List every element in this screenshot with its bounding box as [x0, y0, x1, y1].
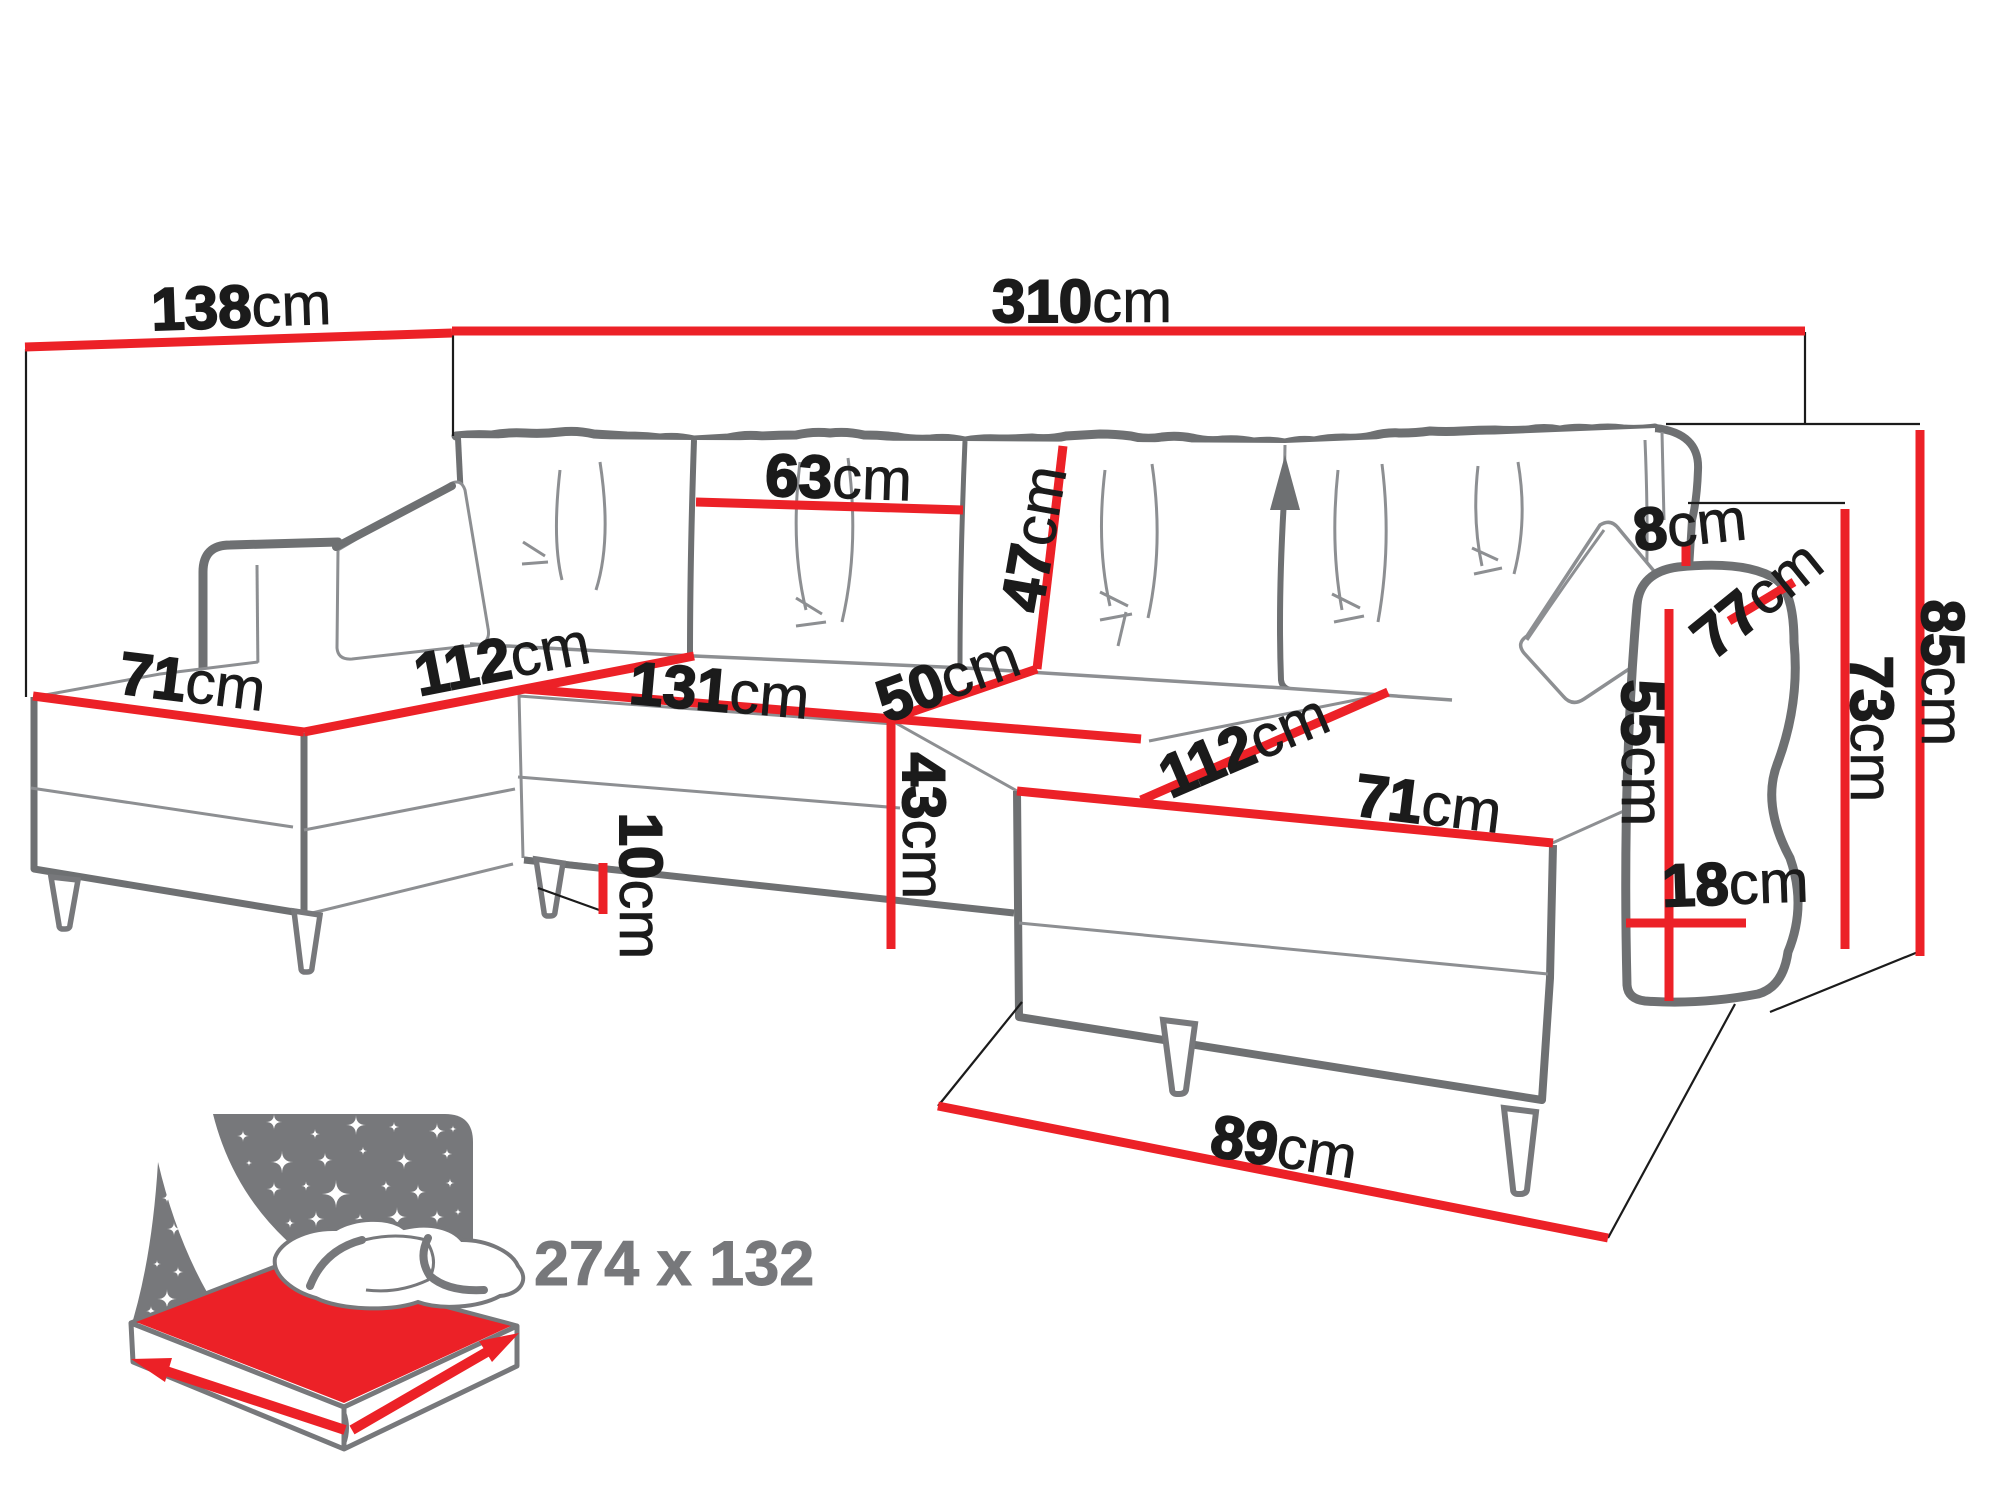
- svg-text:10cm: 10cm: [607, 813, 674, 960]
- svg-text:43cm: 43cm: [890, 753, 957, 900]
- svg-text:63cm: 63cm: [764, 441, 913, 513]
- svg-text:18cm: 18cm: [1661, 847, 1810, 919]
- svg-text:8cm: 8cm: [1630, 485, 1750, 563]
- svg-text:138cm: 138cm: [150, 270, 332, 343]
- svg-text:274 x 132: 274 x 132: [534, 1229, 814, 1299]
- svg-text:55cm: 55cm: [1609, 680, 1676, 827]
- svg-text:310cm: 310cm: [992, 268, 1172, 335]
- svg-text:85cm: 85cm: [1909, 600, 1976, 747]
- svg-text:73cm: 73cm: [1838, 656, 1905, 803]
